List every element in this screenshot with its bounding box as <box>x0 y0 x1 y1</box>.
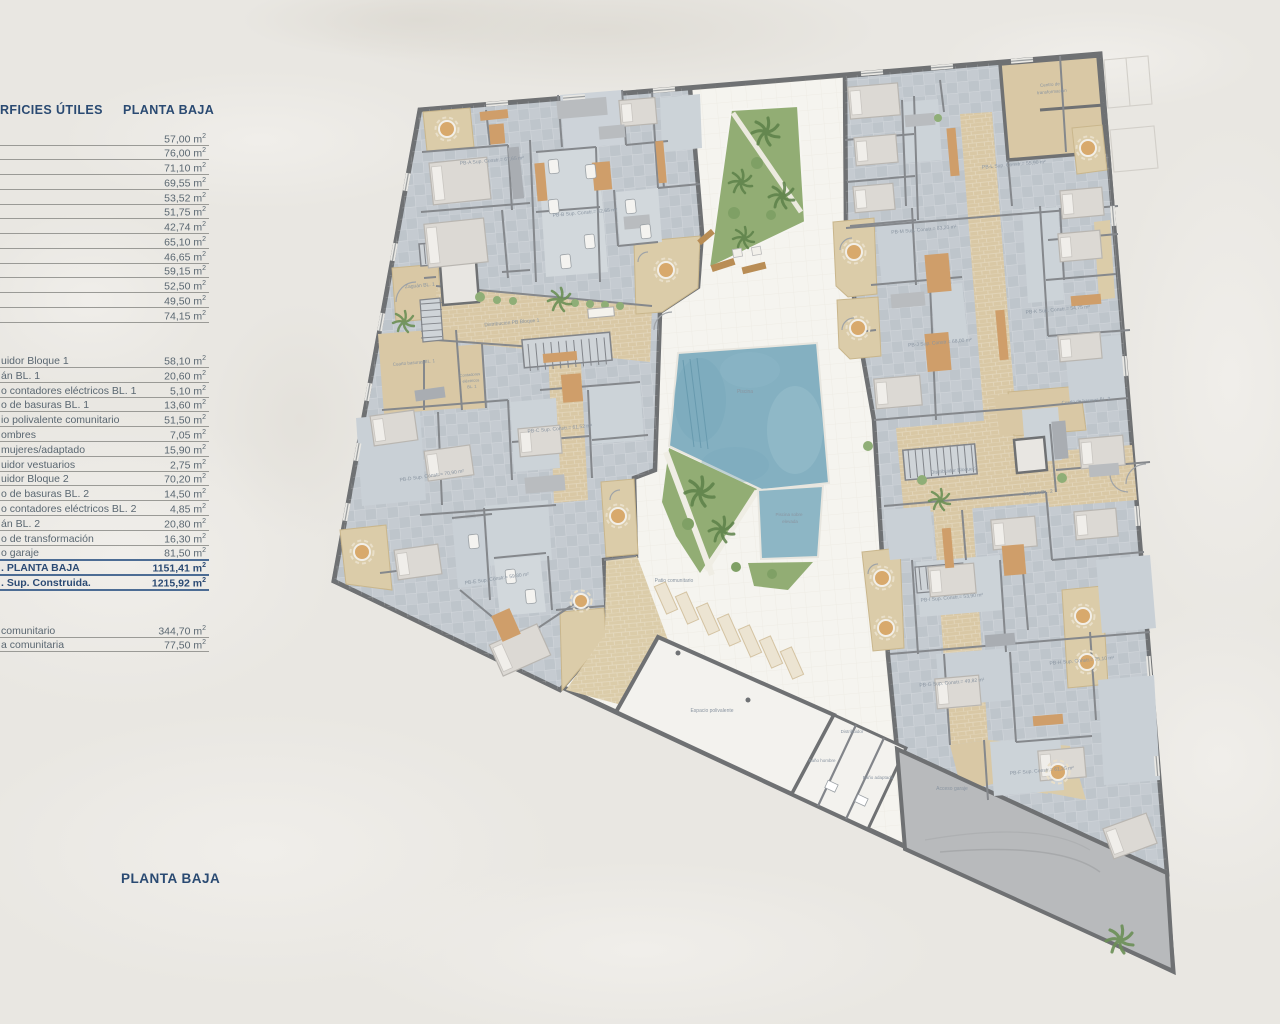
svg-text:BL. 1: BL. 1 <box>467 384 478 390</box>
svg-text:Piscina: Piscina <box>737 389 753 395</box>
svg-text:Baño hombre: Baño hombre <box>808 758 836 763</box>
svg-text:Distribuidor: Distribuidor <box>841 729 864 734</box>
svg-text:Piscina sobre: Piscina sobre <box>775 512 803 517</box>
svg-text:Patio comunitario: Patio comunitario <box>655 578 694 584</box>
svg-text:Acceso garaje: Acceso garaje <box>936 786 968 792</box>
svg-text:Baño adaptado: Baño adaptado <box>863 775 894 780</box>
svg-text:Espacio polivalente: Espacio polivalente <box>690 708 733 714</box>
svg-text:elevada: elevada <box>782 519 798 524</box>
